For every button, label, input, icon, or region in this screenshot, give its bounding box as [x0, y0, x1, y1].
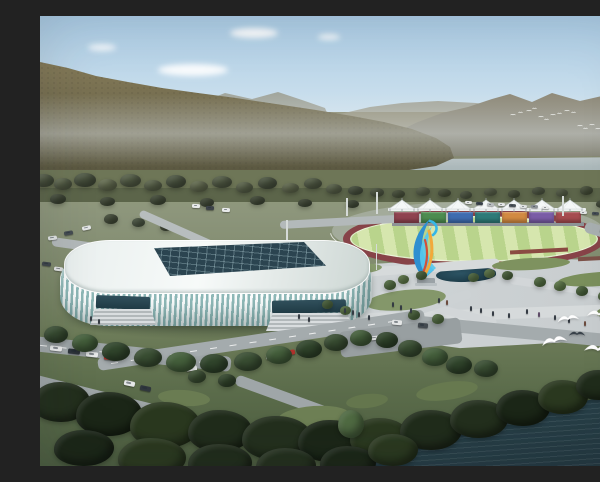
tree-line-band-near	[40, 188, 600, 202]
arena-entrance-glass-left	[96, 295, 150, 310]
atmospheric-haze	[40, 94, 600, 166]
arena-stairs-left	[90, 309, 156, 325]
indoor-arena	[60, 240, 372, 332]
arena-entrance-glass-right	[272, 299, 346, 313]
aerial-rendering-sports-complex	[40, 16, 600, 466]
arena-stairs-right	[266, 313, 354, 331]
